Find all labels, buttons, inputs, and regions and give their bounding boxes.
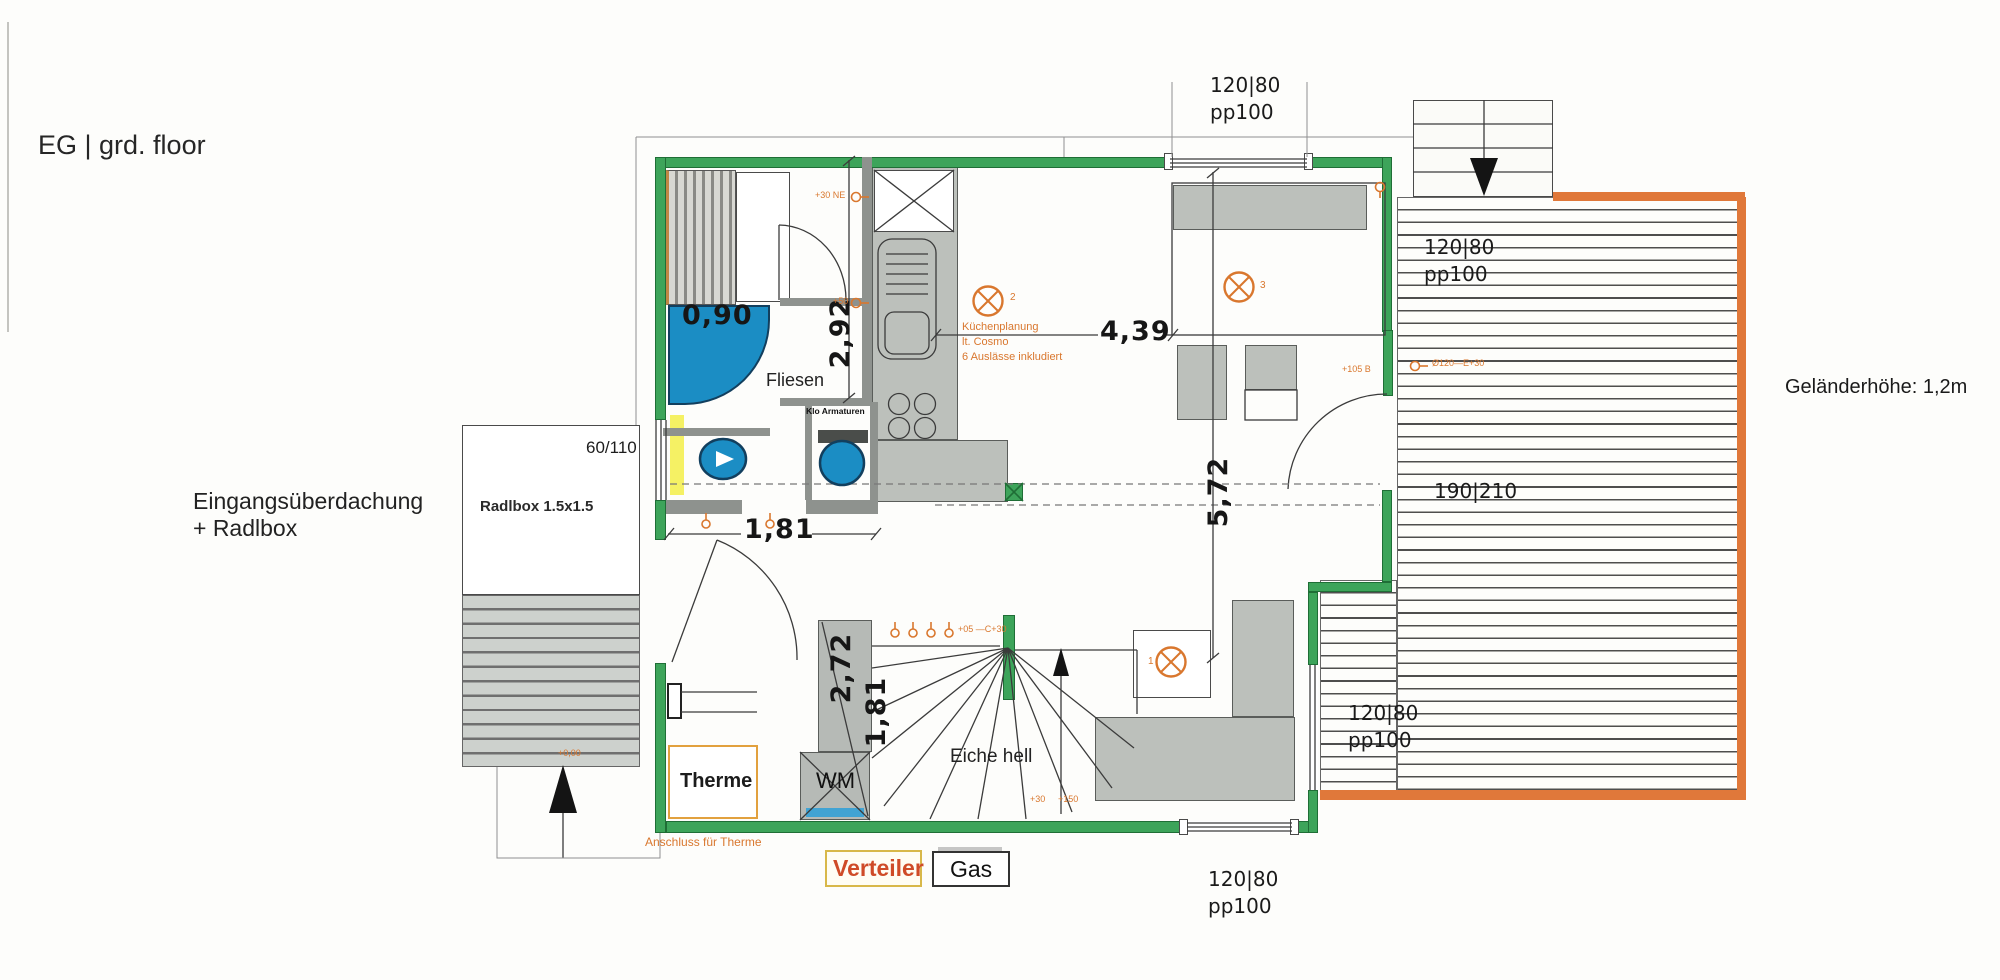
kitchen-elec-note-1: Küchenplanung <box>962 320 1062 335</box>
gas-label: Gas <box>950 856 992 883</box>
entrance-note-line1: Eingangsüberdachung <box>193 488 423 515</box>
kitchen-elec-note-3: 6 Auslässe inkludiert <box>962 350 1062 365</box>
wc-fittings-label: Klo Armaturen <box>806 406 870 416</box>
dim-living-width: 4,39 <box>1100 316 1171 347</box>
lamp-id-kitchen: 2 <box>1010 292 1016 303</box>
entrance-arrow <box>497 765 660 858</box>
dimension-lines <box>664 156 1219 663</box>
tag-door-left: +105 B <box>1342 364 1371 374</box>
terrace-lower-label: 120|80 pp100 <box>1348 700 1418 754</box>
kitchen-elec-note: Küchenplanung lt. Cosmo 6 Auslässe inklu… <box>962 320 1062 365</box>
radiator <box>668 684 757 718</box>
terrace-upper-size: 120|80 <box>1424 234 1494 261</box>
tiles-label: Fliesen <box>766 370 824 391</box>
terrace-lower-type: pp100 <box>1348 727 1418 754</box>
dim-shower: 0,90 <box>682 300 753 331</box>
tag-stair-150: +150 <box>1058 794 1078 804</box>
dashed-projection-lines <box>670 484 1380 505</box>
entry-window-label: 60/110 <box>586 438 637 458</box>
terrace-upper-label: 120|80 pp100 <box>1424 234 1494 288</box>
lamp-kitchen-icon <box>974 287 1003 316</box>
bath-door <box>779 225 846 300</box>
kitchen-elec-note-2: lt. Cosmo <box>962 335 1062 350</box>
radlbox-label: Radlbox 1.5x1.5 <box>480 498 593 515</box>
tag-stair-row: +05 —C+30 <box>958 624 1007 634</box>
tag-door-right: Ø120—E+30 <box>1432 358 1484 368</box>
lamp-living-icon <box>1157 648 1186 677</box>
washbasin <box>700 439 746 479</box>
entry-level-mark: +0,00 <box>558 748 581 758</box>
page-title: EG | grd. floor <box>38 130 206 161</box>
lamp-id-bedroom: 3 <box>1260 280 1266 291</box>
window-bottom-type: pp100 <box>1208 893 1278 920</box>
lamp-bedroom-icon <box>1225 273 1254 302</box>
window-bottom-label: 120|80 pp100 <box>1208 866 1278 920</box>
staircase-treads <box>872 646 1137 819</box>
railing-note: Geländerhöhe: 1,2m <box>1785 376 1967 399</box>
terrace-door-arc <box>1288 394 1387 489</box>
terrace-upper-type: pp100 <box>1424 261 1494 288</box>
stair-walking-line <box>1053 648 1069 814</box>
therme-connection-note: Anschluss für Therme <box>645 835 762 849</box>
entrance-note-line2: + Radlbox <box>193 515 423 542</box>
window-top-type: pp100 <box>1210 99 1280 126</box>
window-top-size: 120|80 <box>1210 72 1280 99</box>
wm-label: WM <box>816 768 855 794</box>
terrace-lower-size: 120|80 <box>1348 700 1418 727</box>
therme-label: Therme <box>680 770 752 793</box>
stairs-material-label: Eiche hell <box>950 746 1032 768</box>
tag-kitchen-mid: +50 <box>833 296 848 306</box>
terrace-stairs-treads <box>1413 100 1553 196</box>
tag-kitchen-top: +30 NE <box>815 190 845 200</box>
dim-stair-run: 2,72 <box>826 626 856 710</box>
dim-hall-width: 1,81 <box>744 514 815 545</box>
floorplan-page: EG | grd. floor Eingangsüberdachung + Ra… <box>0 0 2000 980</box>
window-bottom-size: 120|80 <box>1208 866 1278 893</box>
bed-outline <box>1172 183 1385 420</box>
verteiler-label: Verteiler <box>833 855 924 882</box>
dim-stair-width: 1,81 <box>861 670 891 754</box>
roof-overhang-lines <box>636 82 1413 425</box>
window-top-label: 120|80 pp100 <box>1210 72 1280 126</box>
tag-stair-30: +30 <box>1030 794 1045 804</box>
terrace-door-label: 190|210 <box>1434 478 1517 505</box>
lamp-id-living: 1 <box>1148 656 1154 667</box>
entrance-note: Eingangsüberdachung + Radlbox <box>193 488 423 542</box>
entry-door <box>672 540 797 662</box>
dim-living-depth: 5,72 <box>1203 450 1233 534</box>
wc-toilet <box>818 430 868 485</box>
